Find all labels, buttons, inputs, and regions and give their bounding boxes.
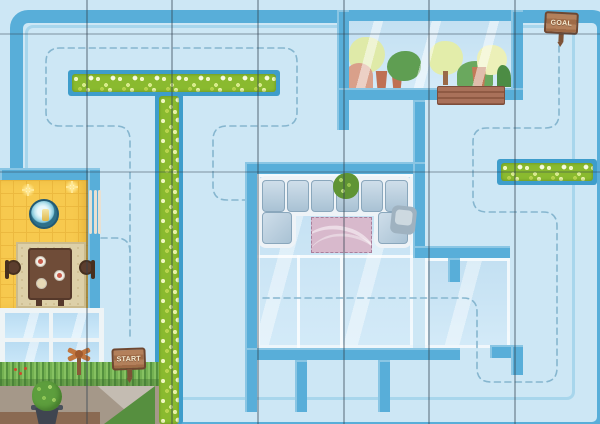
wall-step-stub bbox=[448, 258, 460, 282]
table-leg bbox=[58, 298, 64, 306]
start-sign[interactable]: START bbox=[111, 347, 146, 383]
chair-back bbox=[5, 260, 9, 279]
armchair-seat bbox=[395, 209, 413, 226]
sofa-arm-cushion-left bbox=[262, 212, 292, 244]
pink-rug bbox=[311, 217, 372, 253]
potted-bush bbox=[32, 381, 62, 411]
window-pane bbox=[53, 313, 99, 338]
plate-icon bbox=[54, 270, 65, 281]
red-flower-icon bbox=[24, 367, 27, 370]
flower-hedge-vertical bbox=[159, 96, 179, 424]
dining-table bbox=[28, 248, 72, 300]
start-sign-label: START bbox=[117, 355, 142, 363]
planter-box bbox=[437, 86, 505, 105]
table-centerpiece-icon bbox=[42, 209, 49, 221]
whirligig-hub bbox=[75, 350, 83, 358]
fold-crease bbox=[257, 0, 259, 424]
wall-greenhouse-to-room bbox=[413, 100, 425, 164]
wall-corner-bottom-right-v bbox=[511, 345, 523, 375]
plate-icon bbox=[35, 256, 46, 267]
red-flower-icon bbox=[19, 372, 22, 375]
fold-crease bbox=[86, 0, 88, 424]
flower-hedge-horizontal bbox=[72, 74, 276, 92]
start-sign-post-tip bbox=[126, 378, 132, 383]
chair-back bbox=[91, 260, 95, 279]
fold-crease bbox=[0, 171, 600, 173]
round-table bbox=[29, 199, 59, 229]
wall-lamp-sparkle-icon bbox=[22, 184, 34, 196]
goal-sign-label: GOAL bbox=[550, 19, 572, 27]
goal-sign-post-tip bbox=[557, 42, 563, 47]
greenhouse-frame-right bbox=[511, 10, 523, 100]
window-pane bbox=[5, 313, 49, 338]
living-room-wall-left bbox=[245, 162, 257, 412]
armchair bbox=[390, 205, 418, 235]
houseplant-icon bbox=[333, 173, 359, 199]
fold-crease bbox=[171, 0, 173, 424]
wall-lamp-sparkle-icon bbox=[66, 181, 78, 193]
door-slat bbox=[89, 190, 92, 234]
plate-icon bbox=[36, 278, 47, 289]
door-slat bbox=[94, 190, 97, 234]
fold-crease bbox=[428, 0, 430, 424]
start-sign-post bbox=[127, 369, 132, 378]
wall-bottom-stub-1 bbox=[295, 360, 307, 412]
maze-map: GOAL START bbox=[0, 0, 600, 424]
door-slat bbox=[98, 190, 101, 234]
goal-sign[interactable]: GOAL bbox=[543, 11, 579, 48]
route-dining-branch bbox=[98, 238, 130, 252]
fold-crease bbox=[514, 0, 516, 424]
red-flower-icon bbox=[14, 368, 17, 371]
fold-crease bbox=[0, 33, 600, 35]
dining-room-wall-top bbox=[0, 168, 100, 180]
table-leg bbox=[36, 298, 42, 306]
dining-chair-left bbox=[6, 260, 21, 275]
wall-bottom-stub-2 bbox=[378, 360, 390, 412]
fold-crease bbox=[343, 0, 345, 424]
